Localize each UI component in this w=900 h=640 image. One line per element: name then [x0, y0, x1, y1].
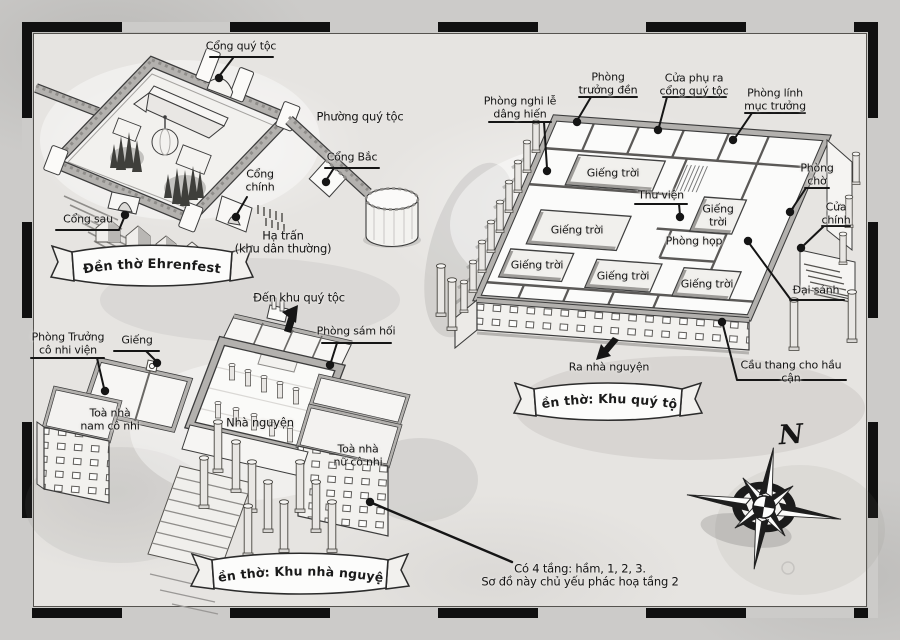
label-skylight-2: Giếng trời: [702, 203, 733, 229]
label-girls-orphanage: Toà nhà nữ cô nhi: [334, 443, 383, 469]
label-back-gate: Cổng sau: [63, 214, 113, 227]
label-to-noble-quarter: Đến khu quý tộc: [253, 291, 345, 304]
label-great-hall: Đại sảnh: [793, 285, 840, 298]
label-main-gate: Cổng chính: [245, 168, 274, 194]
label-well: Giếng: [121, 335, 152, 348]
banner-chapel-quarter: Đền thờ: Khu nhà nguyện: [191, 553, 409, 594]
label-chapel: Nhà nguyện: [226, 416, 294, 429]
label-side-door-noble-gate: Cửa phụ ra cổng quý tộc: [660, 72, 729, 98]
label-skylight-1: Giếng trời: [587, 168, 639, 181]
label-waiting-room: Phòng chờ: [800, 162, 833, 188]
map-page: Đền thờ Ehrenfest Đền thờ: Khu quý tộc Đ…: [0, 0, 900, 640]
label-confession-room: Phòng sám hối: [317, 326, 396, 339]
label-skylight-3: Giếng trời: [551, 225, 603, 238]
banner-castle: Đền thờ Ehrenfest: [51, 245, 253, 286]
label-noble-gate: Cổng quý tộc: [206, 41, 277, 54]
label-servant-stairs: Cầu thang cho hầu cận: [737, 359, 846, 385]
label-boys-orphanage: Toà nhà nam cô nhi: [80, 407, 139, 433]
label-skylight-4: Giếng trời: [511, 260, 563, 273]
label-lower-town: Hạ trấn (khu dân thường): [235, 230, 332, 257]
label-offering-ritual-room: Phòng nghi lễ dâng hiến: [484, 95, 557, 121]
label-main-door: Cửa chính: [821, 201, 850, 227]
label-library: Thư viện: [638, 190, 684, 203]
banner-noble-quarter: Đền thờ: Khu quý tộc: [514, 383, 702, 420]
label-skylight-6: Giếng trời: [681, 279, 733, 292]
label-meeting-room: Phòng họp: [666, 236, 723, 249]
label-head-priest-guard-room: Phòng lính mục trưởng: [744, 87, 806, 113]
compass-north-letter: N: [778, 419, 805, 452]
label-skylight-5: Giếng trời: [597, 271, 649, 284]
label-temple-head-room: Phòng trưởng đền: [579, 71, 638, 97]
label-orphanage-director-room: Phòng Trưởng cô nhi viện: [32, 331, 105, 357]
label-exit-to-chapel: Ra nhà nguyện: [569, 362, 649, 375]
label-noble-district: Phường quý tộc: [317, 110, 404, 123]
label-floors-note: Có 4 tầng: hầm, 1, 2, 3. Sơ đồ này chủ y…: [481, 563, 678, 590]
label-north-gate: Cổng Bắc: [327, 152, 378, 165]
